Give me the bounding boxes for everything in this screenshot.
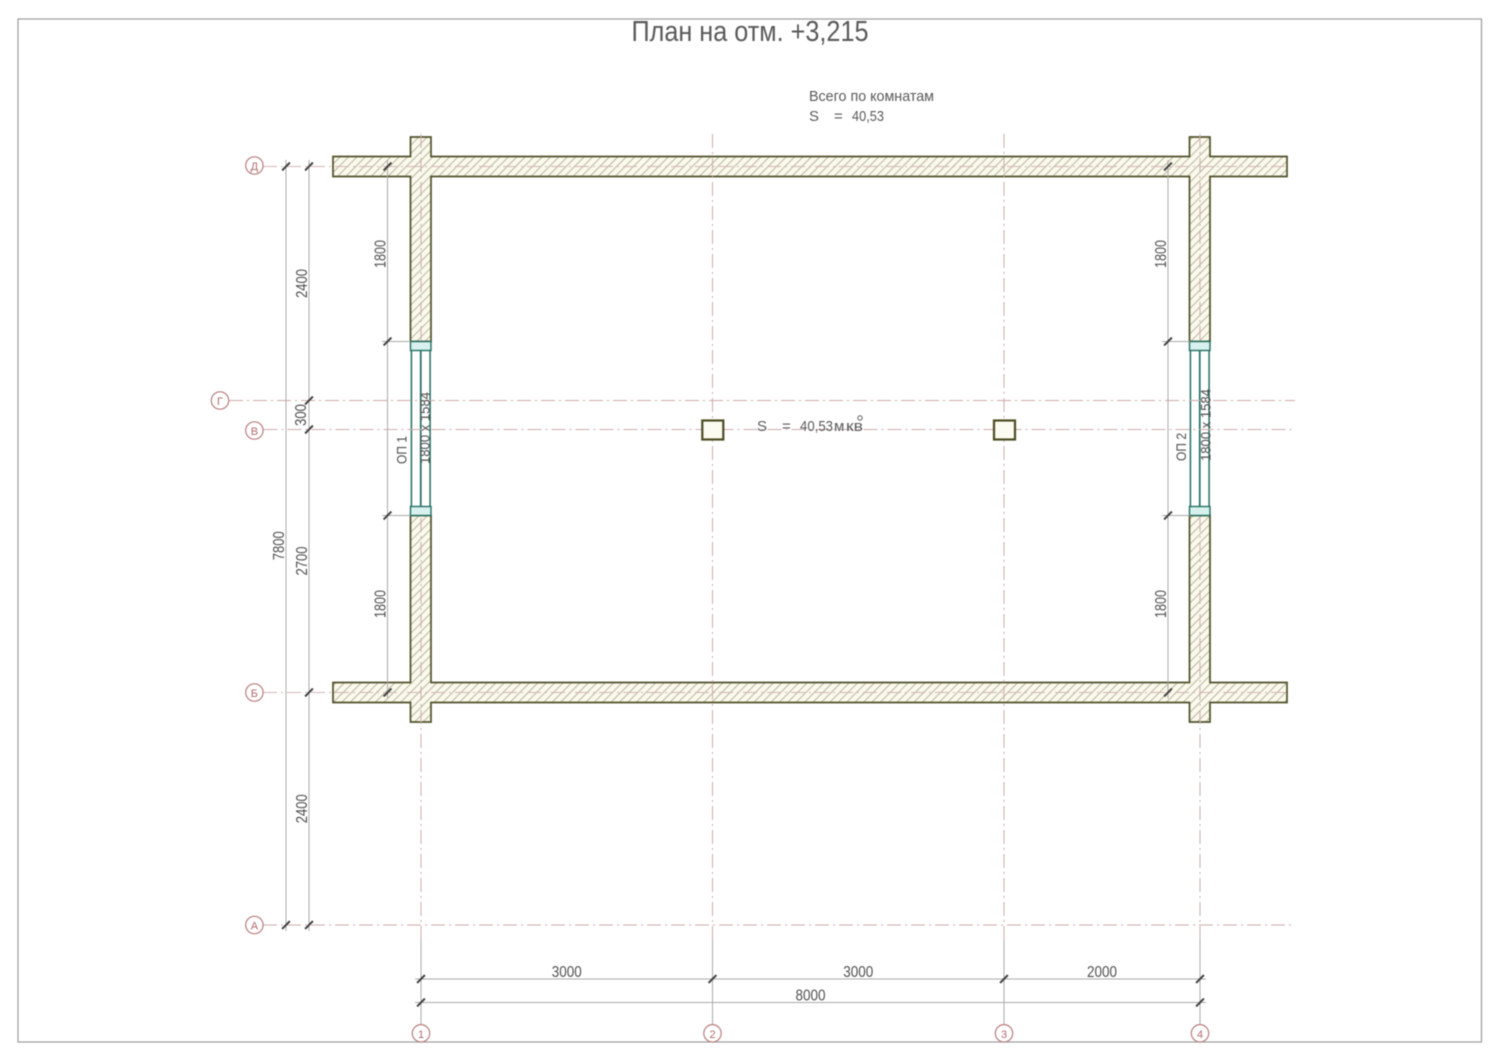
svg-text:В: В — [251, 426, 258, 438]
svg-text:S: S — [757, 418, 767, 435]
svg-text:План на отм. +3,215: План на отм. +3,215 — [632, 16, 869, 48]
svg-text:ОП 2: ОП 2 — [1174, 433, 1189, 461]
svg-text:Г: Г — [217, 396, 223, 408]
svg-text:3000: 3000 — [552, 964, 582, 981]
svg-text:2400: 2400 — [294, 794, 311, 823]
svg-text:3: 3 — [1001, 1029, 1007, 1041]
svg-text:1800 х 1584: 1800 х 1584 — [1199, 389, 1214, 461]
svg-text:3000: 3000 — [843, 964, 873, 981]
svg-text:Всего по комнатам: Всего по комнатам — [809, 88, 934, 105]
svg-text:Д: Д — [251, 161, 259, 173]
svg-text:1800: 1800 — [373, 240, 390, 268]
svg-text:40,53: 40,53 — [800, 418, 833, 435]
svg-text:Б: Б — [251, 688, 258, 700]
svg-text:8000: 8000 — [796, 988, 826, 1005]
svg-text:4: 4 — [1197, 1029, 1203, 1041]
svg-text:300: 300 — [293, 404, 310, 426]
svg-text:=: = — [782, 418, 791, 435]
svg-text:ОП 1: ОП 1 — [395, 436, 410, 464]
svg-text:1800 х 1584: 1800 х 1584 — [418, 392, 433, 464]
svg-text:2400: 2400 — [294, 269, 311, 298]
svg-text:7800: 7800 — [271, 531, 288, 560]
svg-text:40,53: 40,53 — [852, 108, 884, 125]
svg-text:м: м — [834, 418, 844, 435]
svg-text:1800: 1800 — [1153, 240, 1170, 268]
svg-text:S: S — [809, 108, 819, 125]
svg-text:2: 2 — [709, 1029, 715, 1041]
svg-text:2700: 2700 — [294, 546, 311, 575]
svg-text:1800: 1800 — [373, 590, 390, 618]
svg-text:1800: 1800 — [1153, 590, 1170, 618]
svg-text:=: = — [834, 108, 843, 125]
svg-text:1: 1 — [418, 1029, 424, 1041]
svg-text:А: А — [251, 921, 259, 933]
svg-text:2000: 2000 — [1087, 964, 1117, 981]
